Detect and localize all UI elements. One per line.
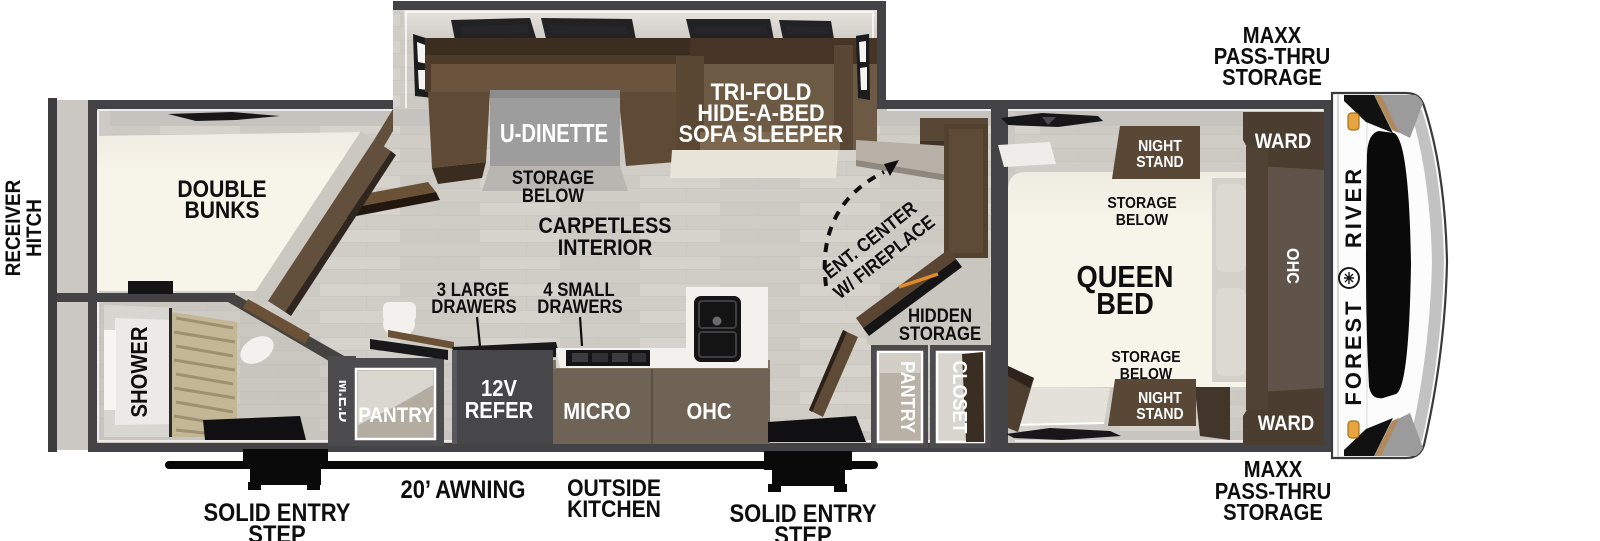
svg-text:STORAGE: STORAGE <box>1223 499 1323 526</box>
svg-text:KITCHEN: KITCHEN <box>567 496 661 523</box>
svg-text:STORAGE: STORAGE <box>1111 348 1180 366</box>
svg-text:CARPETLESS: CARPETLESS <box>539 214 672 238</box>
svg-text:BUNKS: BUNKS <box>184 197 259 224</box>
svg-text:FOREST: FOREST <box>1341 298 1366 405</box>
svg-text:DRAWERS: DRAWERS <box>431 296 516 317</box>
svg-text:STEP: STEP <box>248 521 305 541</box>
svg-text:BED: BED <box>1096 287 1154 321</box>
svg-text:STAND: STAND <box>1136 153 1184 171</box>
svg-text:SHOWER: SHOWER <box>126 326 153 417</box>
svg-text:STEP: STEP <box>774 522 831 541</box>
svg-text:BELOW: BELOW <box>1116 211 1169 229</box>
svg-text:PANTRY: PANTRY <box>358 404 434 427</box>
svg-text:RIVER: RIVER <box>1341 166 1366 248</box>
svg-text:20’ AWNING: 20’ AWNING <box>400 476 525 504</box>
svg-text:STORAGE: STORAGE <box>1107 194 1176 212</box>
svg-text:CLOSET: CLOSET <box>948 361 970 434</box>
svg-text:OHC: OHC <box>1283 248 1303 284</box>
svg-text:HITCH: HITCH <box>23 199 46 257</box>
svg-text:U-DINETTE: U-DINETTE <box>500 119 608 148</box>
svg-text:STAND: STAND <box>1136 405 1184 423</box>
svg-text:SOFA SLEEPER: SOFA SLEEPER <box>679 120 844 147</box>
svg-text:WARD: WARD <box>1255 130 1311 153</box>
svg-text:MICRO: MICRO <box>563 398 630 425</box>
svg-text:WARD: WARD <box>1258 412 1314 435</box>
svg-text:RECEIVER: RECEIVER <box>2 179 25 276</box>
svg-text:INTERIOR: INTERIOR <box>558 236 653 260</box>
svg-text:STORAGE: STORAGE <box>899 323 981 344</box>
svg-text:OHC: OHC <box>687 398 732 425</box>
svg-text:BELOW: BELOW <box>522 185 584 206</box>
svg-text:PANTRY: PANTRY <box>896 361 918 433</box>
svg-text:REFER: REFER <box>465 397 534 424</box>
svg-text:STORAGE: STORAGE <box>1222 64 1322 91</box>
svg-text:BELOW: BELOW <box>1120 365 1173 383</box>
svg-text:DRAWERS: DRAWERS <box>537 296 622 317</box>
